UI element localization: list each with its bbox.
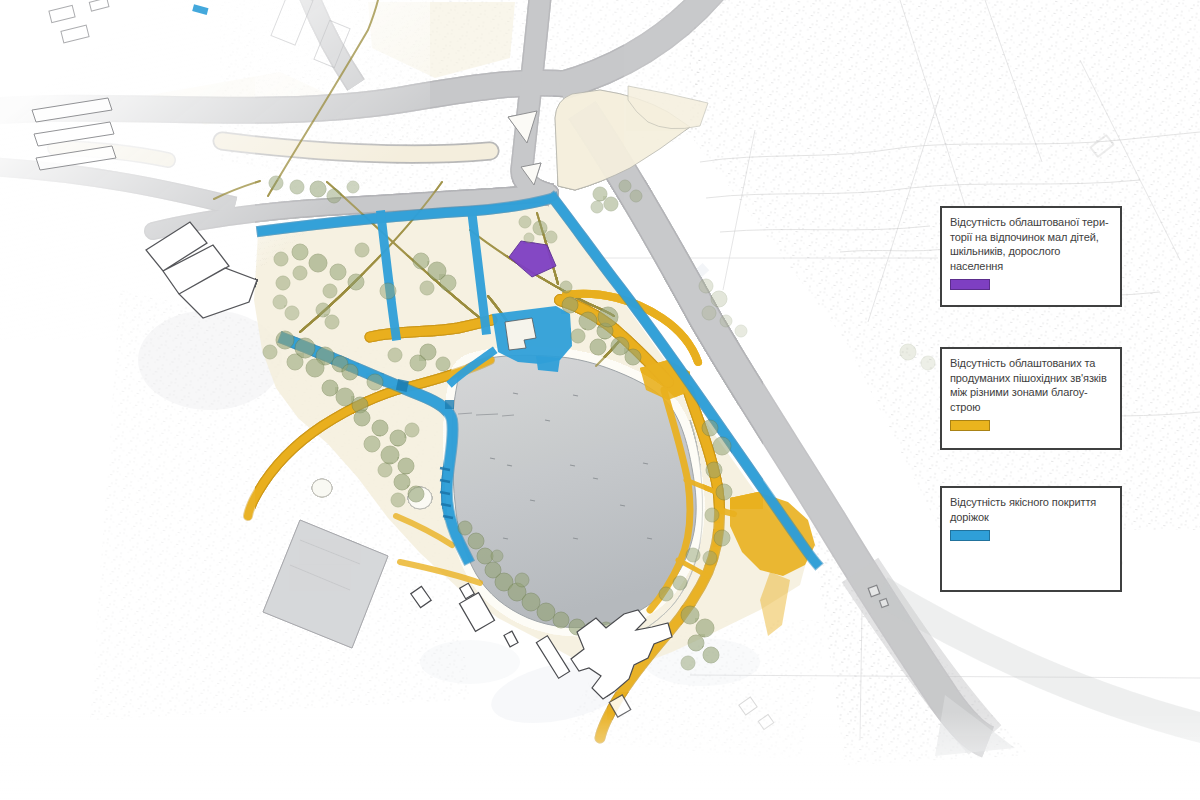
tree-icon: [713, 437, 731, 455]
tree-icon: [522, 593, 540, 611]
site-plan-canvas: Відсутність облаштованої тери- торії на …: [0, 0, 1200, 800]
tree-icon: [408, 486, 424, 502]
tree-icon: [591, 201, 603, 213]
tree-icon: [276, 276, 290, 290]
tree-icon: [659, 587, 673, 601]
tree-icon: [681, 656, 695, 670]
tree-icon: [372, 420, 388, 436]
tree-icon: [367, 374, 383, 390]
tree-icon: [436, 357, 450, 371]
legend-item-pedestrian-links-missing: Відсутність облаштованих та продуманих п…: [940, 347, 1122, 450]
tree-icon: [293, 266, 307, 280]
legend-text-line: між різними зонами благоу-: [950, 385, 1112, 400]
legend-item-path-surfacing-missing: Відсутність якісного покриття доріжок: [940, 486, 1122, 592]
tree-icon: [325, 315, 339, 329]
tree-icon: [440, 275, 456, 291]
tree-icon: [537, 603, 555, 621]
industrial-strips: [32, 98, 116, 170]
tree-icon: [398, 458, 414, 474]
tree-icon: [347, 181, 359, 193]
tree-icon: [413, 253, 429, 269]
tree-icon: [579, 312, 597, 330]
tree-icon: [702, 420, 718, 436]
tree-icon: [263, 345, 277, 359]
tree-icon: [553, 612, 569, 628]
tree-icon: [519, 216, 531, 228]
tree-icon: [273, 295, 287, 309]
tree-icon: [699, 279, 713, 293]
legend-swatch-blue: [950, 530, 990, 541]
tree-icon: [405, 423, 419, 437]
tree-icon: [458, 521, 472, 535]
tree-icon: [309, 254, 327, 272]
legend-swatch-purple: [950, 279, 990, 290]
tree-icon: [681, 606, 699, 624]
tree-icon: [316, 303, 330, 317]
tree-icon: [533, 221, 547, 235]
tree-icon: [703, 551, 717, 565]
tree-icon: [269, 176, 283, 190]
tree-icon: [336, 388, 354, 406]
tree-icon: [673, 576, 687, 590]
tree-icon: [524, 233, 534, 243]
legend-item-recreation-areas-missing: Відсутність облаштованої тери- торії на …: [940, 206, 1122, 307]
tree-icon: [290, 180, 304, 194]
tree-icon: [327, 189, 341, 203]
tree-icon: [560, 281, 572, 293]
tree-icon: [276, 331, 294, 349]
tree-icon: [562, 297, 578, 313]
tree-icon: [688, 635, 704, 651]
tree-icon: [330, 264, 346, 280]
tree-icon: [323, 284, 337, 298]
tree-icon: [378, 463, 392, 477]
tree-icon: [342, 364, 358, 380]
tree-icon: [711, 291, 727, 307]
tree-icon: [593, 187, 607, 201]
tree-icon: [388, 348, 402, 362]
legend-text-line: шкільників, дорослого населення: [950, 244, 1112, 273]
legend-swatch-yellow: [950, 420, 990, 431]
tree-icon: [348, 274, 364, 290]
tree-icon: [714, 530, 730, 546]
tree-icon: [364, 436, 380, 452]
tree-icon: [598, 307, 618, 327]
legend-text-line: Відсутність облаштованих та: [950, 356, 1112, 371]
tree-icon: [604, 197, 618, 211]
wash-bottom: [0, 712, 1200, 800]
tree-icon: [702, 306, 716, 320]
tree-icon: [274, 252, 288, 266]
tree-icon: [720, 315, 732, 327]
tree-icon: [306, 359, 324, 377]
tree-icon: [703, 647, 719, 663]
tree-icon: [716, 484, 732, 500]
tree-icon: [381, 446, 399, 464]
legend-text-line: Відсутність якісного покриття: [950, 495, 1112, 510]
tree-icon: [420, 281, 434, 295]
small-pond: [312, 479, 332, 497]
tree-icon: [468, 533, 484, 549]
tree-icon: [390, 430, 406, 446]
tree-icon: [491, 550, 503, 562]
tree-icon: [921, 356, 935, 370]
tree-icon: [545, 231, 557, 243]
tree-icon: [619, 180, 631, 192]
tree-icon: [380, 283, 396, 299]
path-node: [445, 400, 454, 409]
legend-text-line: доріжок: [950, 510, 1112, 525]
tree-icon: [355, 243, 369, 257]
tree-icon: [420, 344, 436, 360]
tree-icon: [625, 349, 641, 365]
tree-icon: [571, 329, 585, 343]
tree-icon: [292, 244, 308, 260]
tree-icon: [900, 344, 916, 360]
legend-text-line: Відсутність облаштованої тери-: [950, 215, 1112, 230]
tree-icon: [686, 548, 700, 562]
tree-icon: [515, 573, 529, 587]
tree-icon: [285, 306, 299, 320]
legend-text-line: продуманих пішохідних зв'язків: [950, 371, 1112, 386]
legend-text-line: строю: [950, 400, 1112, 415]
tree-icon: [696, 619, 714, 637]
path-node: [396, 379, 409, 392]
tree-icon: [630, 190, 642, 202]
tree-icon: [735, 325, 747, 337]
tree-icon: [391, 493, 405, 507]
tree-icon: [705, 508, 719, 522]
tree-icon: [354, 410, 370, 426]
tree-icon: [706, 462, 722, 478]
tree-icon: [322, 380, 338, 396]
tree-icon: [590, 339, 606, 355]
legend-text-line: торії на відпочинок мал дітей,: [950, 230, 1112, 245]
tree-icon: [287, 354, 303, 370]
tree-icon: [394, 474, 410, 490]
tree-icon: [310, 181, 326, 197]
